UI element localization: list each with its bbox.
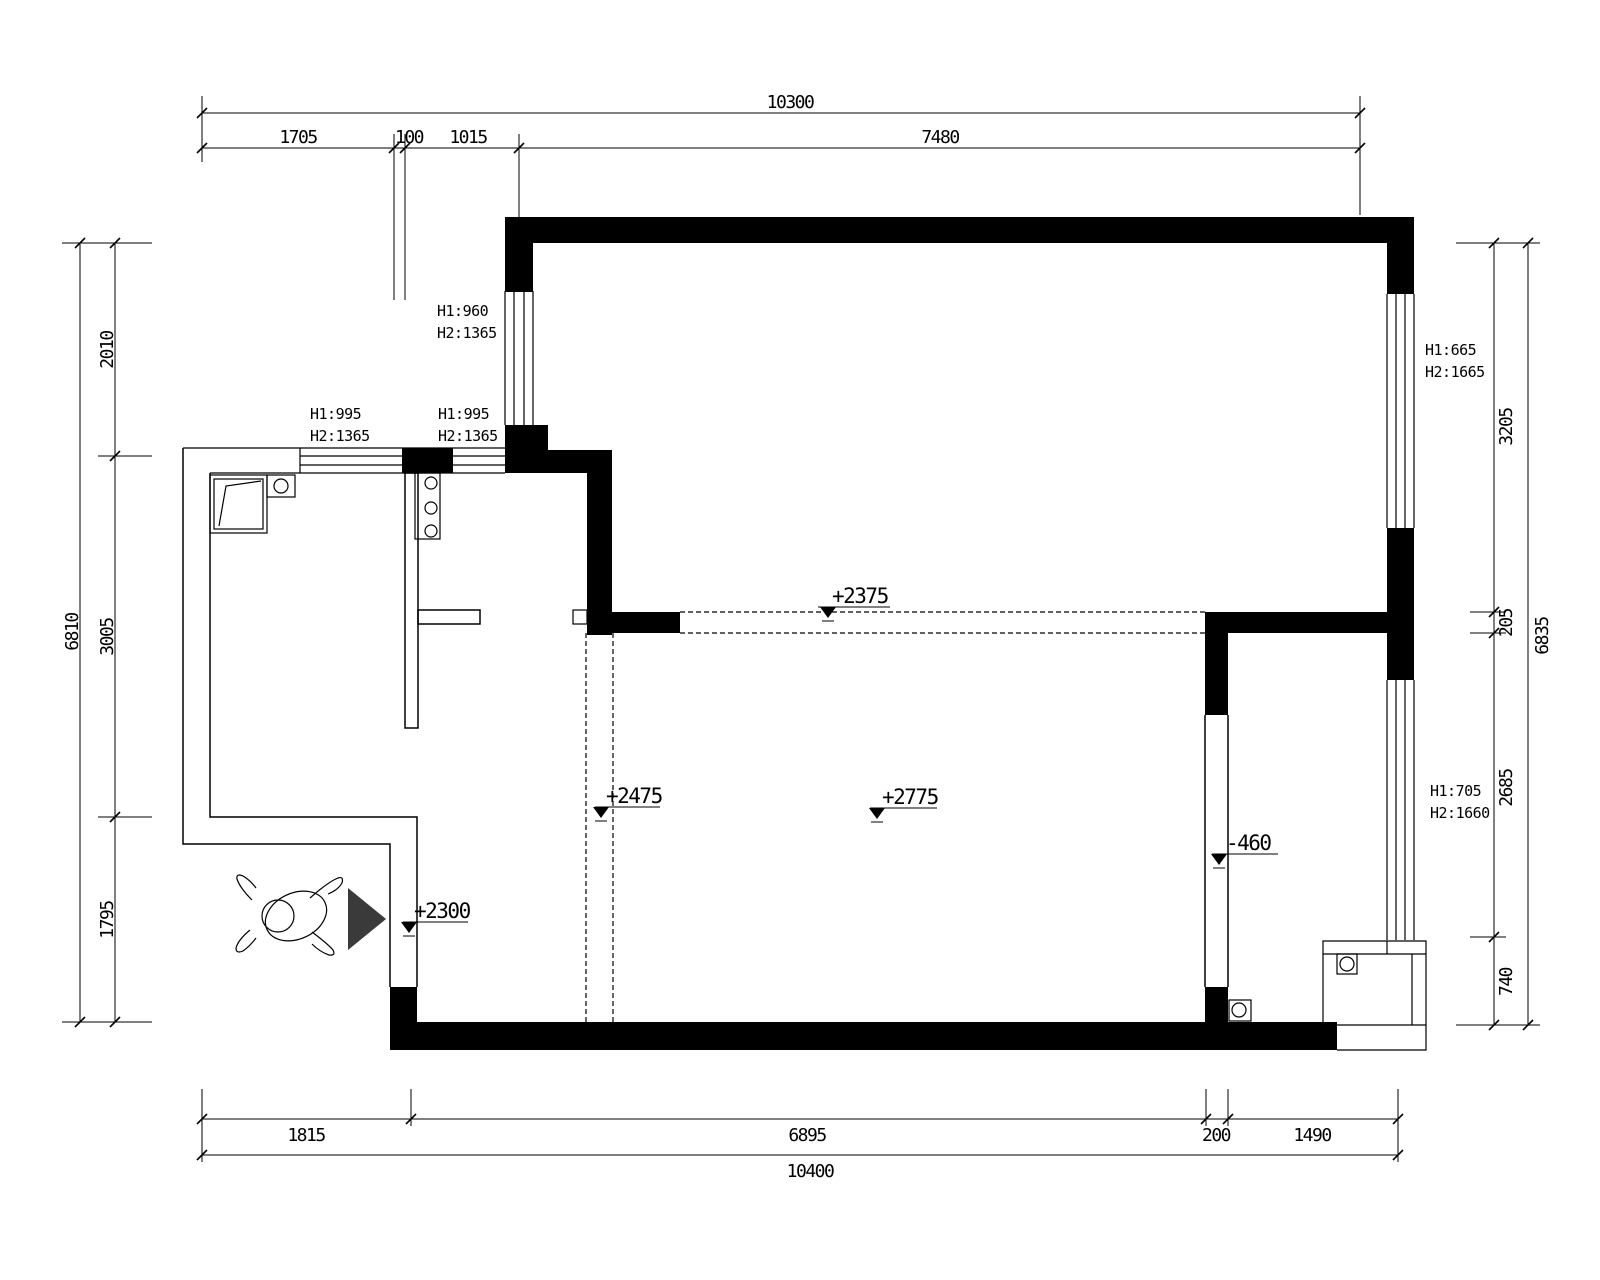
dim-label: 200 — [1202, 1125, 1231, 1146]
window-label-h2: H2:1665 — [1425, 363, 1485, 381]
window-label-h1: H1:705 — [1430, 782, 1481, 800]
dim-label: 3205 — [1496, 408, 1517, 446]
wall-step-a — [505, 425, 548, 473]
level-label: +2475 — [606, 784, 662, 808]
window-right-upper — [1387, 294, 1414, 528]
window-label-h2: H2:1365 — [438, 427, 498, 445]
wall-interior-left — [587, 473, 612, 635]
faucet — [267, 475, 295, 497]
level-label: +2775 — [882, 785, 938, 809]
wall-beam-left — [587, 612, 680, 633]
level-marker-living: +2775 — [869, 785, 938, 822]
window-label-h1: H1:665 — [1425, 341, 1476, 359]
floor-plan-drawing: +2375 +2475 +2775 +2300 -460 H1:9 — [0, 0, 1600, 1280]
right-partition-outline — [1205, 715, 1228, 987]
window-label-h2: H2:1365 — [437, 324, 497, 342]
person-figure — [236, 875, 343, 955]
wall-interior-right-upper — [1205, 633, 1228, 715]
window-balcony-band — [183, 448, 505, 473]
dim-label: 6810 — [62, 613, 83, 651]
level-marker-kitchen: +2475 — [593, 784, 662, 821]
dim-label: 6895 — [788, 1125, 826, 1146]
kitchen-partition — [405, 473, 480, 728]
dim-label: 6835 — [1532, 617, 1553, 655]
dim-label: 10400 — [787, 1161, 834, 1182]
dim-label: 10300 — [767, 92, 814, 113]
dim-label: 1705 — [279, 127, 317, 148]
dashed-lines — [586, 612, 1205, 1022]
dim-label: 100 — [395, 127, 424, 148]
dim-label: 1490 — [1293, 1125, 1331, 1146]
window-labels: H1:960 H2:1365 H1:995 H2:1365 H1:995 H2:… — [310, 302, 1490, 822]
dim-label: 1795 — [97, 901, 118, 939]
level-marker-entry: +2300 — [401, 899, 471, 936]
dim-label: 205 — [1496, 608, 1517, 637]
level-marker-beam: +2375 — [818, 584, 890, 621]
dim-label: 7480 — [921, 127, 959, 148]
wall-right-mid-pier — [1387, 528, 1414, 680]
window-label-h1: H1:960 — [437, 302, 489, 320]
fixtures — [210, 473, 1426, 1050]
vanity-counter — [1323, 941, 1426, 1050]
dim-label: 2685 — [1496, 769, 1517, 807]
level-label: +2375 — [832, 584, 888, 608]
floor-drain — [1229, 1000, 1251, 1021]
wall-notch — [573, 610, 587, 624]
window-label-h2: H2:1365 — [310, 427, 370, 445]
wall-bottom — [417, 1022, 1337, 1050]
window-label-h1: H1:995 — [438, 405, 489, 423]
wall-top — [505, 217, 1414, 243]
dim-chain-left: 6810 2010 3005 1795 — [62, 238, 152, 1027]
dim-label: 2010 — [97, 331, 118, 369]
dim-chain-top: 10300 1705 100 1015 7480 — [197, 92, 1365, 300]
walls — [390, 217, 1414, 1050]
entrance-arrow — [348, 888, 386, 950]
level-label: -460 — [1226, 831, 1271, 855]
wall-top-left-pier — [505, 243, 533, 292]
wall-right-upper-pier — [1387, 243, 1414, 294]
dim-label: 1015 — [449, 127, 487, 148]
wall-interior-right-lower — [1205, 987, 1228, 1022]
window-label-h2: H2:1660 — [1430, 804, 1490, 822]
level-label: +2300 — [414, 899, 471, 923]
sink — [210, 475, 267, 533]
window-top-left — [505, 291, 533, 425]
level-marker-bath: -460 — [1211, 831, 1278, 868]
dim-label: 740 — [1496, 967, 1517, 996]
wall-interior-right-horizontal — [1205, 612, 1414, 633]
level-markers: +2375 +2475 +2775 +2300 -460 — [401, 584, 1278, 936]
dim-label: 1815 — [287, 1125, 325, 1146]
dim-label: 3005 — [97, 618, 118, 656]
wall-step-b — [545, 450, 612, 473]
window-label-h1: H1:995 — [310, 405, 361, 423]
floor-plan-canvas: +2375 +2475 +2775 +2300 -460 H1:9 — [0, 0, 1600, 1280]
wall-entry-pier — [390, 987, 417, 1050]
window-right-lower — [1387, 680, 1414, 940]
wall-balcony-mullion — [402, 448, 453, 473]
dim-chain-bottom: 1815 6895 200 1490 10400 — [197, 1089, 1403, 1182]
